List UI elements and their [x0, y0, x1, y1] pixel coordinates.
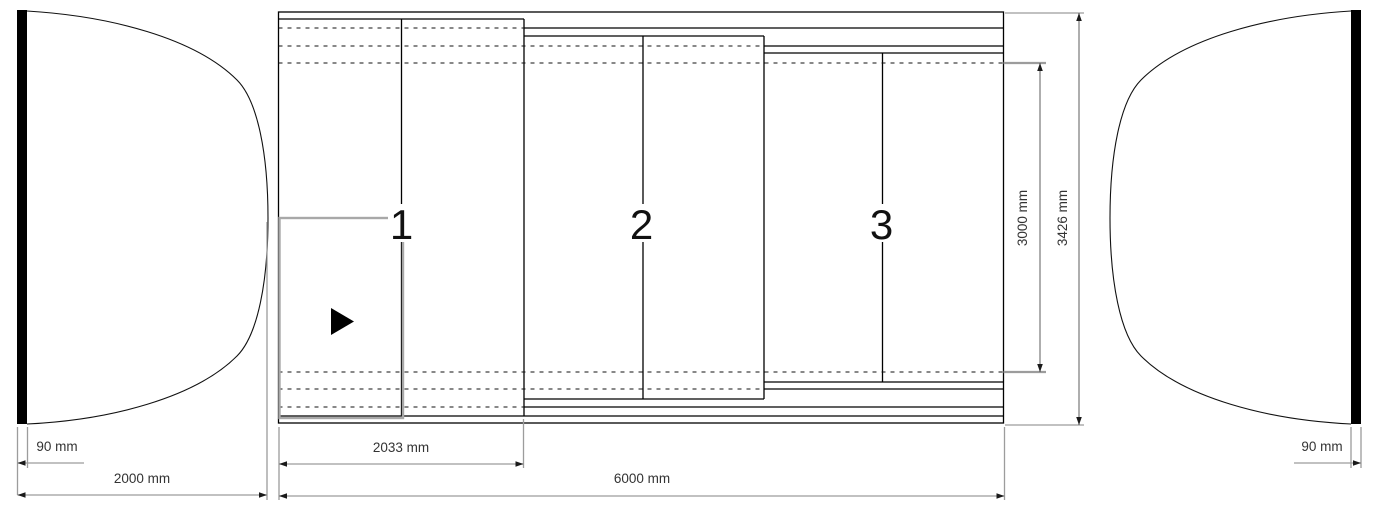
- dim-left-end-length: 2000 mm: [18, 222, 268, 500]
- dim-left-wall-thickness: 90 mm: [18, 427, 85, 495]
- left-wall-bar: [17, 10, 27, 424]
- segment-labels: 1 2 3: [388, 201, 895, 248]
- dim-right-wall-thickness-label: 90 mm: [1301, 439, 1342, 454]
- dim-inner-width-label: 3000 mm: [1015, 190, 1030, 246]
- dim-segment1-length: 2033 mm: [279, 419, 524, 500]
- enclosure-body: 1 2 3: [279, 12, 1004, 423]
- dim-outer-width-label: 3426 mm: [1055, 190, 1070, 246]
- dim-total-length-label: 6000 mm: [614, 471, 670, 486]
- left-end-dome: [27, 11, 268, 424]
- segment-2: [524, 28, 1004, 407]
- dim-left-end-length-label: 2000 mm: [114, 471, 170, 486]
- right-end-wall: [1110, 10, 1361, 424]
- right-wall-bar: [1351, 10, 1361, 424]
- segment-3-label: 3: [870, 201, 893, 248]
- segment-2-label: 2: [630, 201, 653, 248]
- right-end-dome: [1110, 11, 1351, 424]
- enclosure-plan-drawing: 1 2 3 90 mm 2000 mm 2033 mm 6000 mm: [0, 0, 1377, 509]
- segment-1-label: 1: [390, 201, 413, 248]
- left-end-wall: [17, 10, 268, 424]
- dim-left-wall-thickness-label: 90 mm: [36, 439, 77, 454]
- play-icon[interactable]: [331, 308, 354, 335]
- dim-segment1-length-label: 2033 mm: [373, 440, 429, 455]
- dim-inner-width: 3000 mm: [1004, 63, 1047, 372]
- dim-right-wall-thickness: 90 mm: [1294, 427, 1361, 468]
